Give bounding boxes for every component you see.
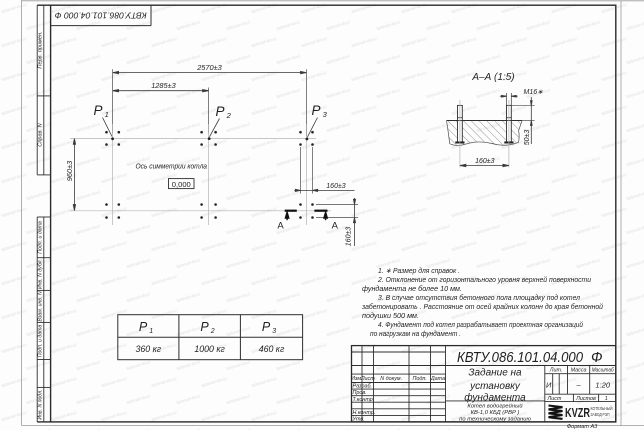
- svg-text:Т.контр.: Т.контр.: [353, 397, 375, 403]
- svg-text:КВТУ.086.101.04.000 Ф: КВТУ.086.101.04.000 Ф: [55, 10, 147, 19]
- svg-text:ЗАВОД РЭП: ЗАВОД РЭП: [591, 412, 610, 417]
- svg-text:фундамента: фундамента: [464, 392, 526, 404]
- svg-text:4. Фундамент под котел разраба: 4. Фундамент под котел разрабатывает про…: [378, 320, 583, 329]
- svg-text:Котел водогрейный: Котел водогрейный: [467, 403, 523, 410]
- svg-text:Ф: Ф: [591, 350, 603, 366]
- svg-text:3. В случае отсутствия бетонно: 3. В случае отсутствия бетонного пола пл…: [378, 293, 580, 302]
- svg-text:Утв.: Утв.: [352, 417, 365, 423]
- svg-text:1:20: 1:20: [595, 381, 610, 390]
- svg-text:А–А (1:5): А–А (1:5): [471, 72, 514, 83]
- svg-text:N докум.: N докум.: [380, 376, 402, 382]
- svg-text:50±3: 50±3: [524, 130, 531, 146]
- svg-text:Масштаб: Масштаб: [592, 368, 615, 374]
- svg-text:Перв. примен.: Перв. примен.: [38, 31, 44, 68]
- svg-text:подушки 500 мм.: подушки 500 мм.: [362, 311, 419, 320]
- svg-text:по нагрузкам на фундамент .: по нагрузкам на фундамент .: [370, 329, 461, 338]
- svg-text:Подп. и дата: Подп. и дата: [38, 221, 44, 254]
- svg-text:Масса: Масса: [571, 368, 587, 374]
- svg-text:Н.контр.: Н.контр.: [353, 410, 376, 416]
- svg-text:1. ∗ Размер для справок .: 1. ∗ Размер для справок .: [378, 266, 460, 275]
- svg-text:Подп. и дата: Подп. и дата: [38, 325, 44, 358]
- svg-text:M16∗: M16∗: [524, 89, 544, 96]
- svg-text:2. Отклонение от горизонтально: 2. Отклонение от горизонтального уровня …: [377, 275, 591, 284]
- svg-text:КВ-1,0 КБД (РВР ): КВ-1,0 КБД (РВР ): [471, 410, 520, 416]
- svg-text:–: –: [576, 380, 582, 389]
- svg-text:забетонировать . Расстояние от: забетонировать . Расстояние от осей край…: [361, 302, 603, 311]
- svg-text:Инв. N подл.: Инв. N подл.: [38, 389, 44, 419]
- svg-text:Листов: Листов: [575, 396, 596, 402]
- svg-text:Пров.: Пров.: [353, 390, 367, 396]
- svg-text:Подп.: Подп.: [413, 376, 427, 382]
- svg-text:0,000: 0,000: [172, 180, 191, 189]
- svg-text:1000 кг: 1000 кг: [194, 344, 225, 354]
- svg-text:КВТУ.086.101.04.000: КВТУ.086.101.04.000: [457, 350, 583, 366]
- svg-text:А: А: [332, 221, 339, 232]
- svg-text:Инв. N дубл.: Инв. N дубл.: [38, 259, 44, 289]
- svg-text:КОТЕЛЬНЫЙ: КОТЕЛЬНЫЙ: [591, 406, 613, 411]
- svg-text:Задание на: Задание на: [468, 368, 522, 379]
- svg-text:160±3: 160±3: [326, 183, 346, 190]
- svg-text:по техническому заданию: по техническому заданию: [459, 416, 531, 422]
- svg-text:460 кг: 460 кг: [259, 344, 285, 354]
- svg-text:Взам. инв. N: Взам. инв. N: [38, 291, 44, 321]
- svg-text:360 кг: 360 кг: [135, 344, 161, 354]
- svg-text:И: И: [546, 381, 552, 390]
- svg-text:фундамента не более 10 мм.: фундамента не более 10 мм.: [362, 284, 462, 293]
- svg-text:2570±3: 2570±3: [196, 63, 222, 72]
- svg-text:KVZR: KVZR: [565, 405, 590, 420]
- svg-text:Лист: Лист: [547, 396, 562, 402]
- svg-text:Дата: Дата: [430, 376, 445, 382]
- svg-text:установку: установку: [469, 381, 521, 392]
- svg-text:160±3: 160±3: [475, 158, 495, 165]
- svg-text:Справ. N: Справ. N: [38, 122, 44, 146]
- svg-text:1285±3: 1285±3: [151, 81, 176, 90]
- svg-text:160±3: 160±3: [345, 227, 352, 247]
- svg-text:Лит.: Лит.: [549, 368, 563, 374]
- svg-text:А: А: [277, 221, 284, 232]
- svg-text:Разраб.: Разраб.: [353, 384, 373, 390]
- svg-text:960±3: 960±3: [65, 160, 74, 181]
- svg-text:Лист: Лист: [360, 376, 375, 382]
- svg-text:Ось симметрии котла: Ось симметрии котла: [136, 162, 208, 171]
- svg-text:1: 1: [605, 396, 608, 402]
- svg-text:Формат А3: Формат А3: [567, 424, 598, 430]
